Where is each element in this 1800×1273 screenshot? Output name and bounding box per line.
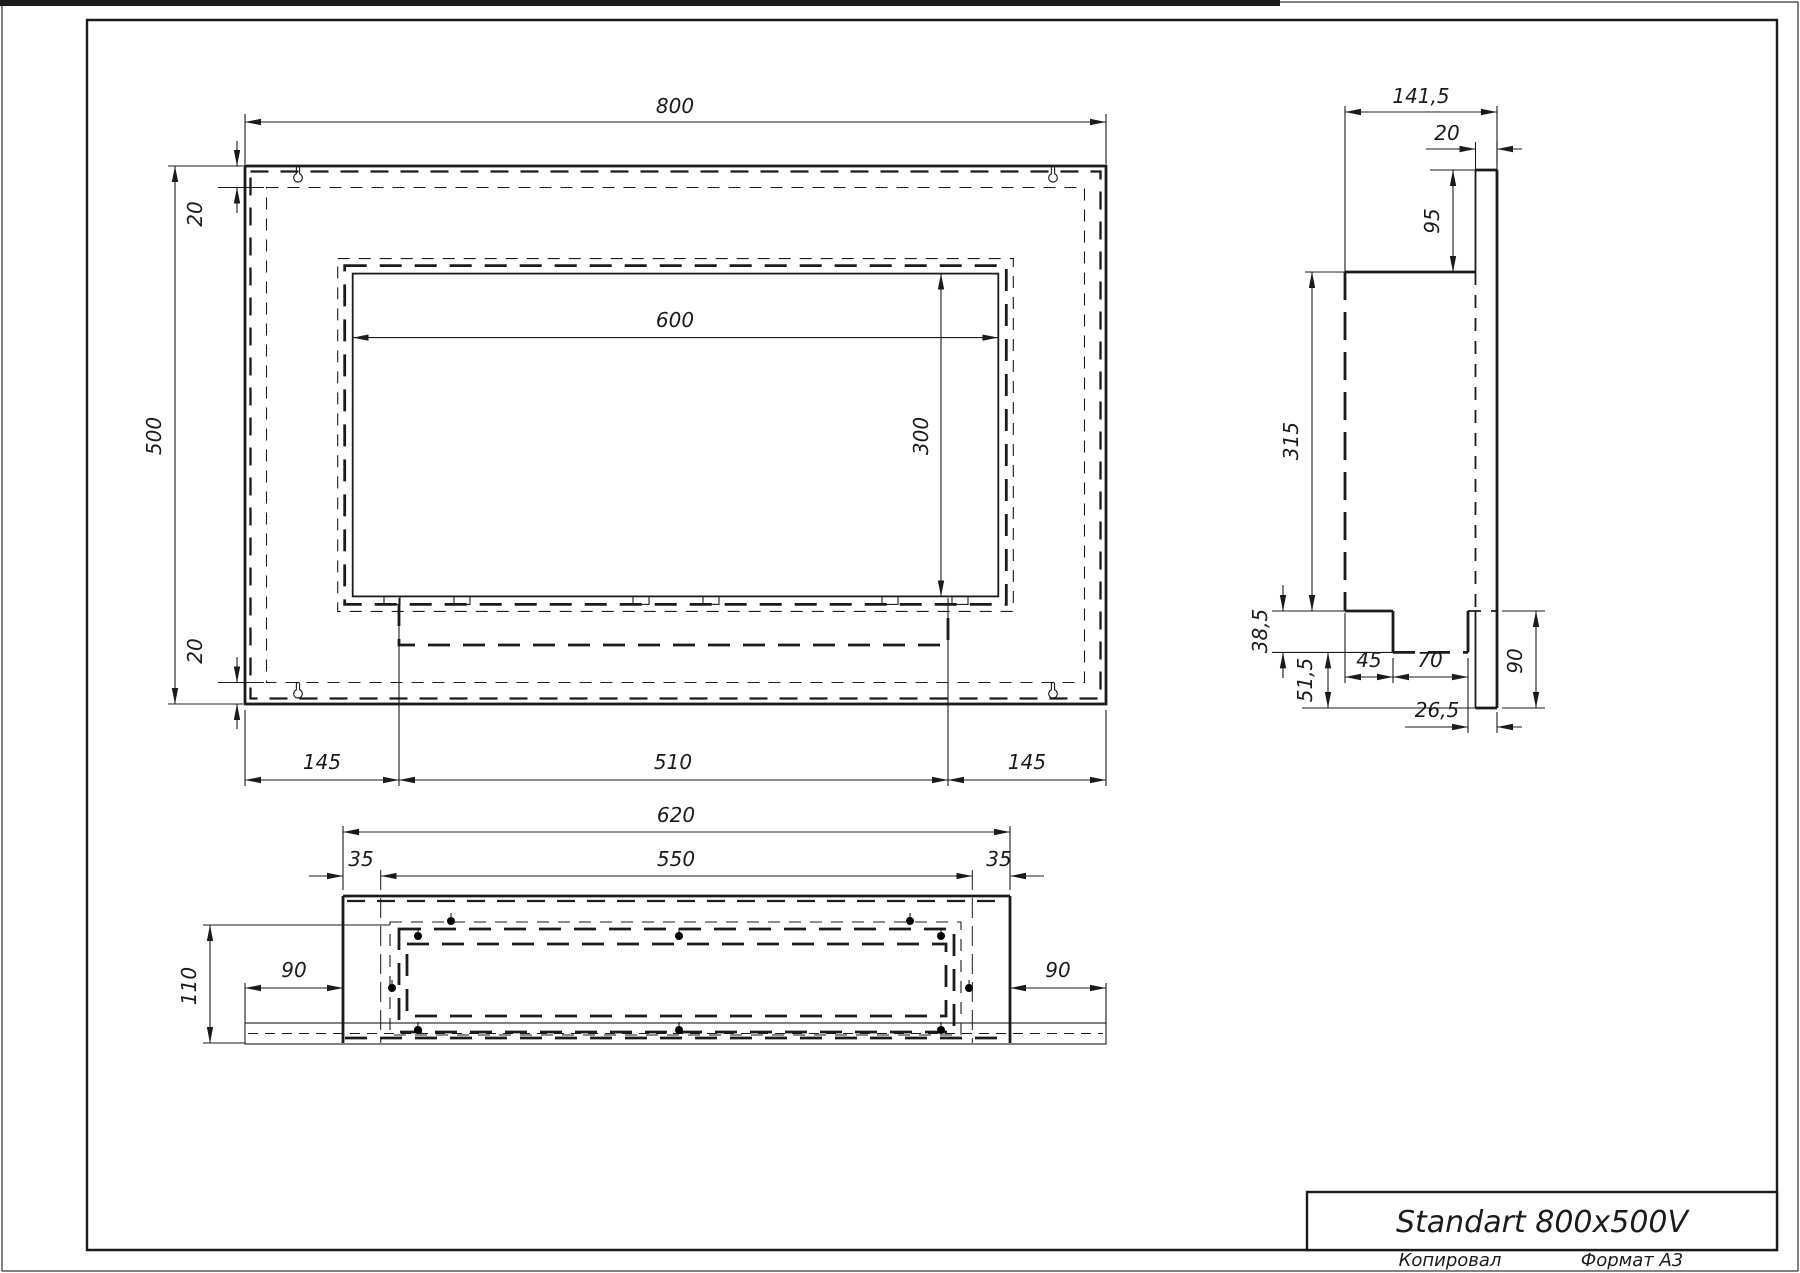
dim-tray-width: 510 bbox=[654, 750, 692, 774]
dim-body-height: 315 bbox=[1279, 422, 1303, 460]
dim-burner-to-back: 26,5 bbox=[1415, 698, 1460, 722]
dim-bottom-inner-width: 550 bbox=[657, 847, 695, 871]
dim-bottom-right-inset: 35 bbox=[986, 847, 1011, 871]
drawing-sheet: 800 500 20 20 600 300 145 510 145 bbox=[0, 0, 1800, 1273]
dim-burner-bottom-offset: 51,5 bbox=[1293, 658, 1317, 703]
dim-side-overall-depth: 141,5 bbox=[1392, 84, 1449, 108]
dim-front-overall-width: 800 bbox=[656, 94, 694, 118]
dim-left-margin: 145 bbox=[303, 750, 341, 774]
dim-opening-width: 600 bbox=[656, 308, 694, 332]
dim-bottom-body-width: 620 bbox=[657, 803, 695, 827]
dim-front-overall-height: 500 bbox=[142, 417, 166, 455]
dim-burner-setback: 45 bbox=[1356, 648, 1381, 672]
dim-bottom-depth: 110 bbox=[177, 967, 201, 1005]
footer-format-label: Формат А3 bbox=[1581, 1250, 1684, 1271]
sheet-background bbox=[0, 0, 1800, 1273]
top-edge-bar bbox=[0, 0, 1280, 6]
dim-right-margin: 145 bbox=[1008, 750, 1046, 774]
dim-backplate-bottom-ext: 90 bbox=[1503, 648, 1527, 673]
dim-burner-depth: 38,5 bbox=[1248, 609, 1272, 654]
dim-front-top-inset: 20 bbox=[183, 201, 207, 226]
dim-front-bottom-inset: 20 bbox=[183, 638, 207, 663]
dim-bottom-left-plate: 90 bbox=[281, 958, 306, 982]
dim-bottom-right-plate: 90 bbox=[1045, 958, 1070, 982]
footer-copied-label: Копировал bbox=[1399, 1250, 1502, 1271]
dim-bottom-left-inset: 35 bbox=[348, 847, 373, 871]
dim-opening-height: 300 bbox=[909, 417, 933, 455]
dim-backplate-thickness: 20 bbox=[1434, 121, 1459, 145]
drawing-title: Standart 800x500V bbox=[1396, 1205, 1691, 1240]
dim-burner-width: 70 bbox=[1417, 648, 1442, 672]
drawing-canvas: 800 500 20 20 600 300 145 510 145 bbox=[0, 0, 1800, 1273]
dim-backplate-top-ext: 95 bbox=[1420, 208, 1444, 233]
